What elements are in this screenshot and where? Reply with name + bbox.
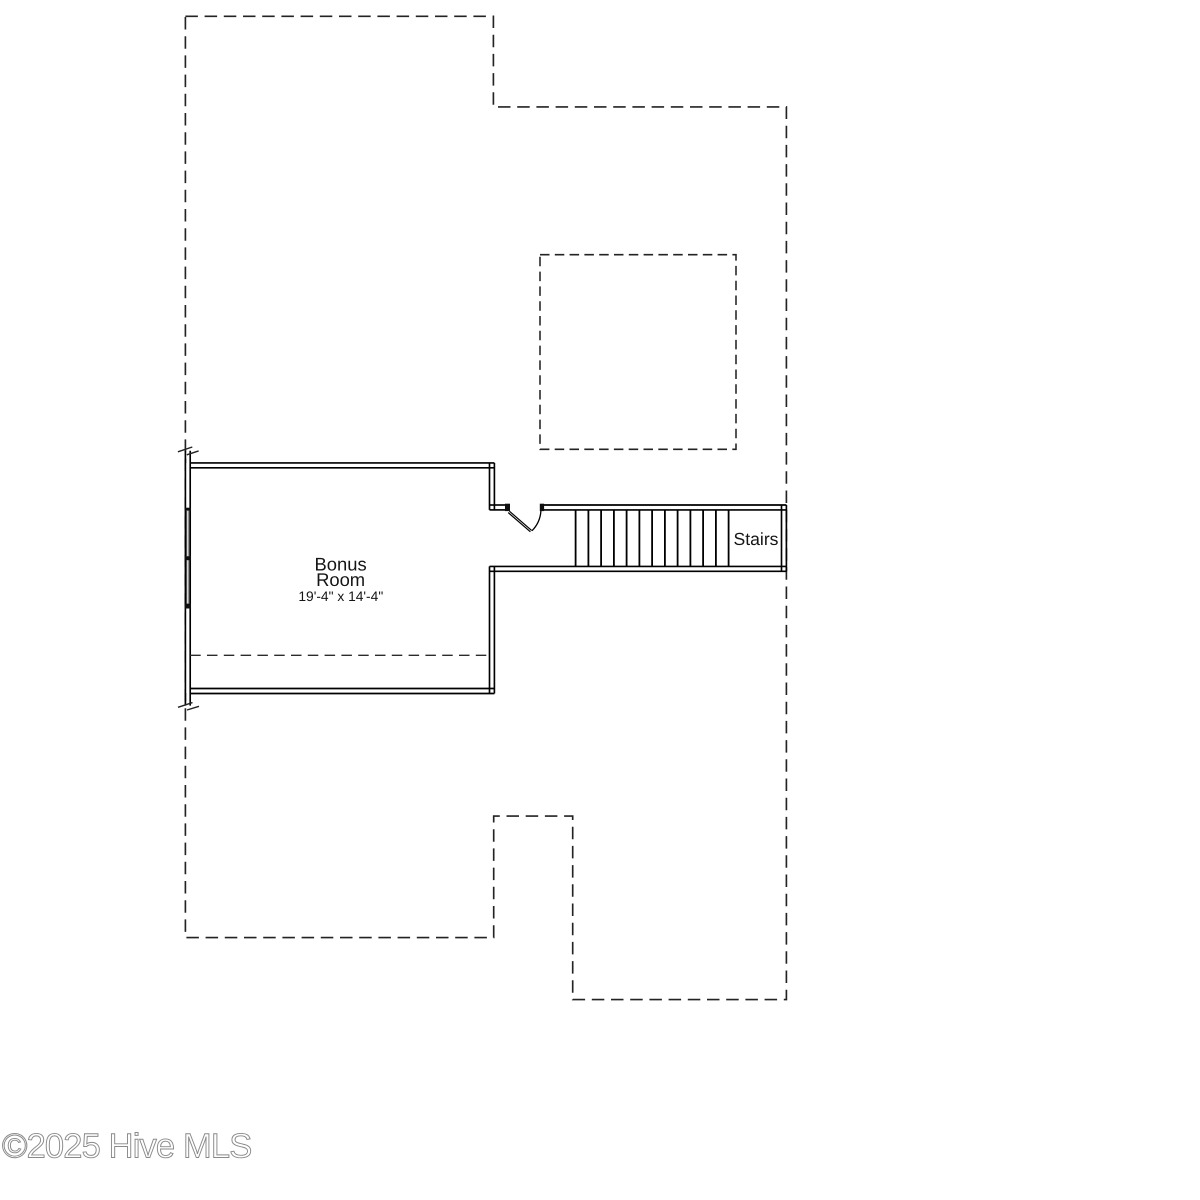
svg-text:19'-4" x 14'-4": 19'-4" x 14'-4" — [298, 589, 383, 604]
svg-text:Room: Room — [316, 569, 365, 590]
svg-text:©2025 Hive MLS: ©2025 Hive MLS — [2, 1128, 251, 1166]
svg-text:Stairs: Stairs — [734, 529, 779, 549]
